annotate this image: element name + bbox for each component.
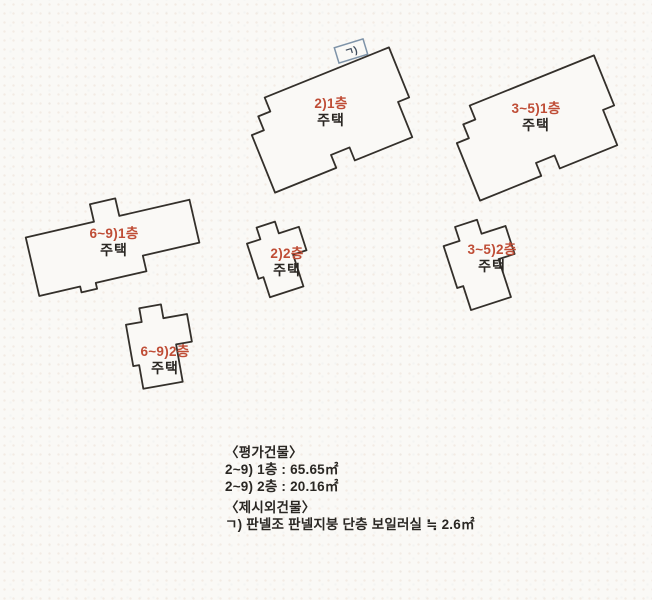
building-label-unit-6-9-1f: 6~9)1층주택 xyxy=(89,226,138,260)
usage-label: 주택 xyxy=(511,118,560,135)
building-label-unit-3-5-1f: 3~5)1층주택 xyxy=(511,101,560,135)
legend-appraised-item-2f: 2~9) 2층 : 20.16㎡ xyxy=(225,478,475,495)
building-label-unit-2-2f: 2)2층주택 xyxy=(270,246,303,280)
building-label-unit-3-5-2f: 3~5)2층주택 xyxy=(467,242,516,276)
legend-extra-heading: 〈제시외건물〉 xyxy=(225,499,475,516)
usage-label: 주택 xyxy=(89,243,138,260)
legend-appraised-heading: 〈평가건물〉 xyxy=(225,444,475,461)
usage-label: 주택 xyxy=(467,259,516,276)
floor-label: 2)1층 xyxy=(314,96,347,112)
usage-label: 주택 xyxy=(270,263,303,280)
floor-label: 6~9)1층 xyxy=(89,226,138,242)
floor-label: 3~5)1층 xyxy=(511,101,560,117)
building-label-unit-6-9-2f: 6~9)2층주택 xyxy=(140,344,189,378)
legend-extra-item-annex: ㄱ) 판넬조 판넬지붕 단층 보일러실 ≒ 2.6㎡ xyxy=(225,516,475,533)
building-label-unit-2-1f: 2)1층주택 xyxy=(314,96,347,130)
legend-appraised-item-1f: 2~9) 1층 : 65.65㎡ xyxy=(225,461,475,478)
usage-label: 주택 xyxy=(314,113,347,130)
floor-label: 6~9)2층 xyxy=(140,344,189,360)
legend: 〈평가건물〉 2~9) 1층 : 65.65㎡ 2~9) 2층 : 20.16㎡… xyxy=(225,444,475,533)
floor-label: 3~5)2층 xyxy=(467,242,516,258)
floor-plan-canvas: ㄱ) 2)1층주택3~5)1층주택6~9)1층주택2)2층주택3~5)2층주택6… xyxy=(0,0,652,600)
usage-label: 주택 xyxy=(140,361,189,378)
floor-label: 2)2층 xyxy=(270,246,303,262)
